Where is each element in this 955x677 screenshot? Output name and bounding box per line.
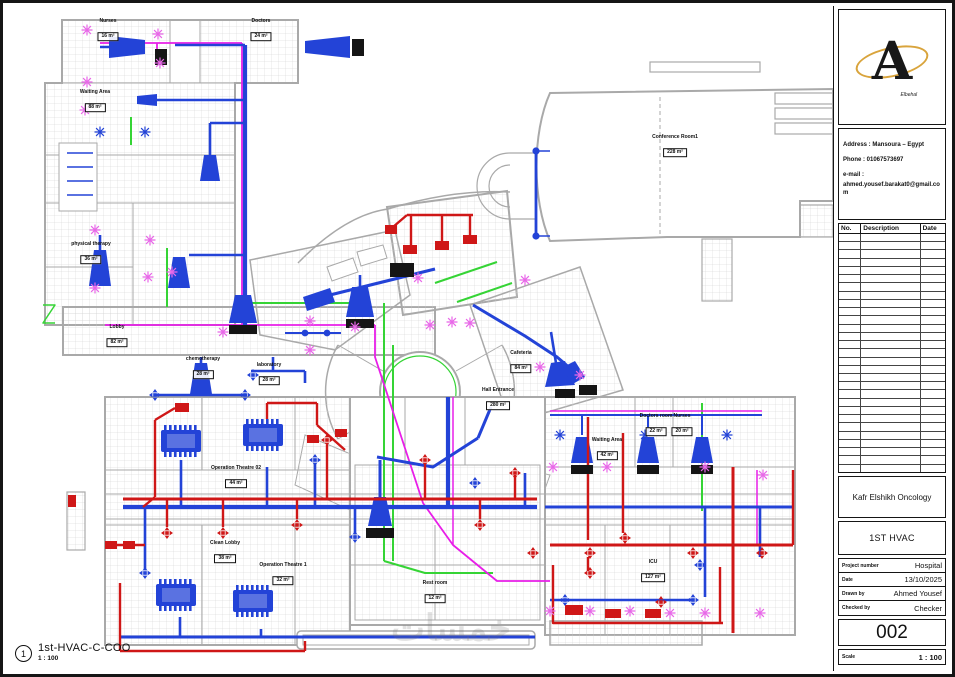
revision-row: [839, 250, 945, 258]
revision-table: No. Description Date: [838, 223, 946, 473]
field-label: Project number: [842, 563, 879, 569]
field-value: Checker: [914, 604, 942, 613]
revision-row: [839, 358, 945, 366]
field-label: Drawn by: [842, 591, 865, 597]
walls-layer: [45, 20, 833, 649]
rev-col-date: Date: [921, 224, 945, 233]
view-marker: 1 1st-HVAC-C-COO 1 : 100: [15, 642, 131, 662]
revision-row: [839, 366, 945, 374]
contact-box: Address : Mansoura – Egypt Phone : 01067…: [838, 128, 946, 220]
scale-label: Scale: [842, 654, 855, 660]
revision-row: [839, 390, 945, 398]
view-scale: 1 : 100: [38, 655, 131, 662]
revision-row: [839, 382, 945, 390]
field-drawn-by: Drawn by Ahmed Yousef: [839, 587, 945, 601]
scale-value: 1 : 100: [919, 653, 942, 662]
field-value: Ahmed Yousef: [894, 589, 942, 598]
revision-row: [839, 259, 945, 267]
revision-row: [839, 308, 945, 316]
field-value: 13/10/2025: [904, 575, 942, 584]
revision-row: [839, 292, 945, 300]
sheet-title: 1ST HVAC: [838, 521, 946, 555]
phone-text: Phone : 01067573697: [843, 156, 941, 164]
rev-col-description: Description: [861, 224, 920, 233]
revision-row: [839, 333, 945, 341]
revision-row: [839, 415, 945, 423]
logo-brand: Elbehal: [900, 92, 917, 98]
field-label: Date: [842, 577, 853, 583]
company-logo: A Elbehal: [838, 9, 946, 125]
revision-row: [839, 325, 945, 333]
revision-header: No. Description Date: [839, 224, 945, 234]
title-block: A Elbehal Address : Mansoura – Egypt Pho…: [833, 6, 949, 671]
view-title: 1st-HVAC-C-COO: [38, 642, 131, 654]
revision-row: [839, 456, 945, 464]
drawing-sheet: Nurses16 m²Doctors24 m²Waiting Area88 m²…: [0, 0, 955, 677]
sheet-number: 002: [838, 619, 946, 646]
revision-rows: [839, 234, 945, 472]
revision-row: [839, 374, 945, 382]
logo-monogram: A: [872, 36, 912, 88]
revision-row: [839, 399, 945, 407]
field-date: Date 13/10/2025: [839, 573, 945, 587]
revision-row: [839, 423, 945, 431]
revision-row: [839, 275, 945, 283]
plan-area: Nurses16 m²Doctors24 m²Waiting Area88 m²…: [5, 5, 835, 674]
email-text: ahmed.yousef.barakat0@gmail.com: [843, 181, 941, 197]
project-name: Kafr Elshikh Oncology: [838, 476, 946, 518]
revision-row: [839, 242, 945, 250]
view-number-bubble: 1: [15, 645, 32, 662]
scale-row: Scale 1 : 100: [838, 649, 946, 665]
revision-row: [839, 440, 945, 448]
field-value: Hospital: [915, 561, 942, 570]
revision-row: [839, 283, 945, 291]
floor-plan: [5, 5, 840, 674]
rev-col-no: No.: [839, 224, 861, 233]
email-label: e-mail :: [843, 171, 941, 179]
revision-row: [839, 267, 945, 275]
revision-row: [839, 432, 945, 440]
field-project-number: Project number Hospital: [839, 559, 945, 573]
revision-row: [839, 349, 945, 357]
revision-row: [839, 407, 945, 415]
field-checked-by: Checked by Checker: [839, 601, 945, 615]
revision-row: [839, 234, 945, 242]
revision-row: [839, 448, 945, 456]
revision-row: [839, 341, 945, 349]
revision-row: [839, 300, 945, 308]
address-text: Address : Mansoura – Egypt: [843, 141, 941, 149]
revision-row: [839, 316, 945, 324]
revision-row: [839, 465, 945, 472]
field-label: Checked by: [842, 605, 870, 611]
title-fields: Project number Hospital Date 13/10/2025 …: [838, 558, 946, 616]
